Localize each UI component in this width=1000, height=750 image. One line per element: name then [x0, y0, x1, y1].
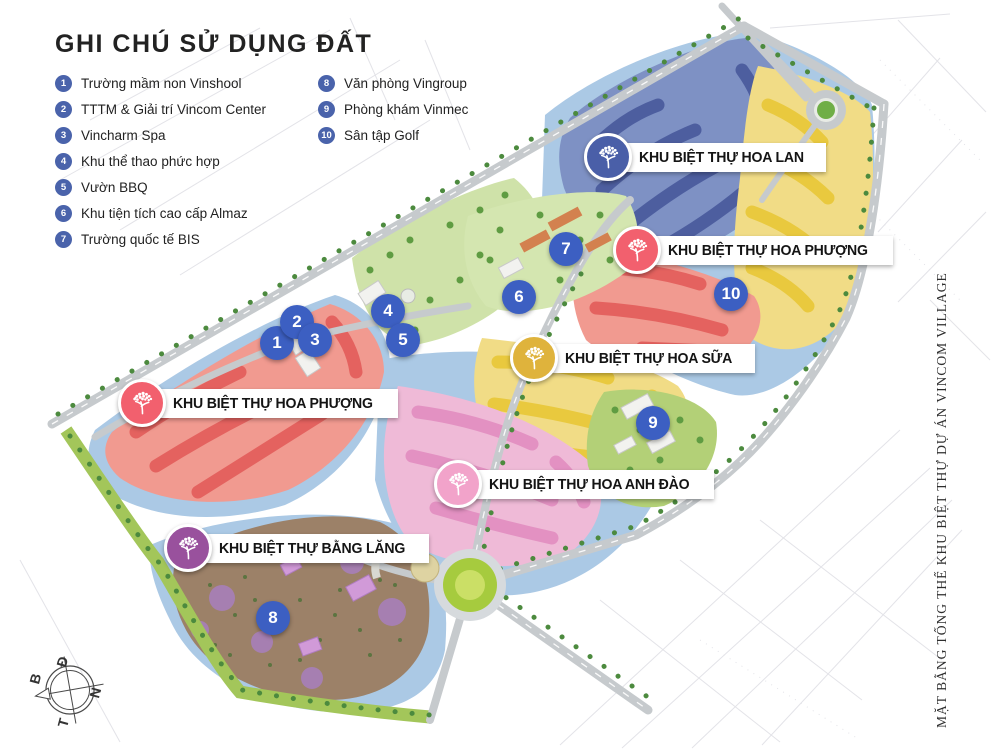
zone-label-hoa-anh-dao: KHU BIỆT THỰ HOA ANH ĐÀO: [434, 460, 714, 508]
map-marker-5: 5: [386, 323, 420, 357]
side-caption: MẶT BẰNG TỔNG THỂ KHU BIỆT THỰ DỰ ÁN VIN…: [934, 398, 950, 728]
legend-number-badge: 6: [55, 205, 72, 222]
tree-icon: [118, 379, 166, 427]
zone-label-hoa-phuong-west: KHU BIỆT THỰ HOA PHƯỢNG: [118, 379, 398, 427]
tree-icon: [510, 334, 558, 382]
legend-number-badge: 5: [55, 179, 72, 196]
map-marker-6: 6: [502, 280, 536, 314]
zone-label-hoa-lan: KHU BIỆT THỰ HOA LAN: [584, 133, 826, 181]
tree-icon: [434, 460, 482, 508]
compass-west-label: T: [54, 716, 72, 729]
zone-label-hoa-sua: KHU BIỆT THỰ HOA SỮA: [510, 334, 755, 382]
legend-item-3: 3Vincharm Spa: [55, 127, 290, 144]
legend-item-9: 9Phòng khám Vinmec: [318, 101, 468, 118]
masterplan-poster: GHI CHÚ SỬ DỤNG ĐẤT 1Trường mầm non Vins…: [0, 0, 1000, 750]
legend-title: GHI CHÚ SỬ DỤNG ĐẤT: [55, 30, 475, 59]
legend-item-1: 1Trường mầm non Vinshool: [55, 75, 290, 92]
legend-panel: GHI CHÚ SỬ DỤNG ĐẤT 1Trường mầm non Vins…: [55, 30, 475, 257]
legend-item-2: 2TTTM & Giải trí Vincom Center: [55, 101, 290, 118]
legend-item-4: 4Khu thể thao phức hợp: [55, 153, 290, 170]
roundabout-south: [434, 549, 506, 621]
compass-north-label: B: [26, 672, 44, 686]
legend-number-badge: 2: [55, 101, 72, 118]
map-marker-9: 9: [636, 406, 670, 440]
legend-item-7: 7Trường quốc tế BIS: [55, 231, 290, 248]
compass-rose: Đ B N T: [22, 642, 118, 738]
tree-icon: [164, 524, 212, 572]
legend-number-badge: 3: [55, 127, 72, 144]
legend-item-5: 5Vườn BBQ: [55, 179, 290, 196]
tree-icon: [584, 133, 632, 181]
legend-number-badge: 1: [55, 75, 72, 92]
roundabout-northeast: [806, 90, 846, 130]
legend-item-8: 8Văn phòng Vingroup: [318, 75, 468, 92]
map-marker-10: 10: [714, 277, 748, 311]
legend-item-10: 10Sân tập Golf: [318, 127, 468, 144]
legend-item-6: 6Khu tiện tích cao cấp Almaz: [55, 205, 290, 222]
legend-number-badge: 4: [55, 153, 72, 170]
zone-label-bang-lang: KHU BIỆT THỰ BẰNG LĂNG: [164, 524, 429, 572]
tree-icon: [613, 226, 661, 274]
legend-number-badge: 10: [318, 127, 335, 144]
map-marker-8: 8: [256, 601, 290, 635]
legend-number-badge: 9: [318, 101, 335, 118]
compass-south-label: N: [86, 686, 104, 700]
legend-number-badge: 7: [55, 231, 72, 248]
compass-east-label: Đ: [53, 655, 71, 669]
zone-label-hoa-phuong-east: KHU BIỆT THỰ HOA PHƯỢNG: [613, 226, 893, 274]
map-marker-3: 3: [298, 323, 332, 357]
map-marker-7: 7: [549, 232, 583, 266]
legend-number-badge: 8: [318, 75, 335, 92]
